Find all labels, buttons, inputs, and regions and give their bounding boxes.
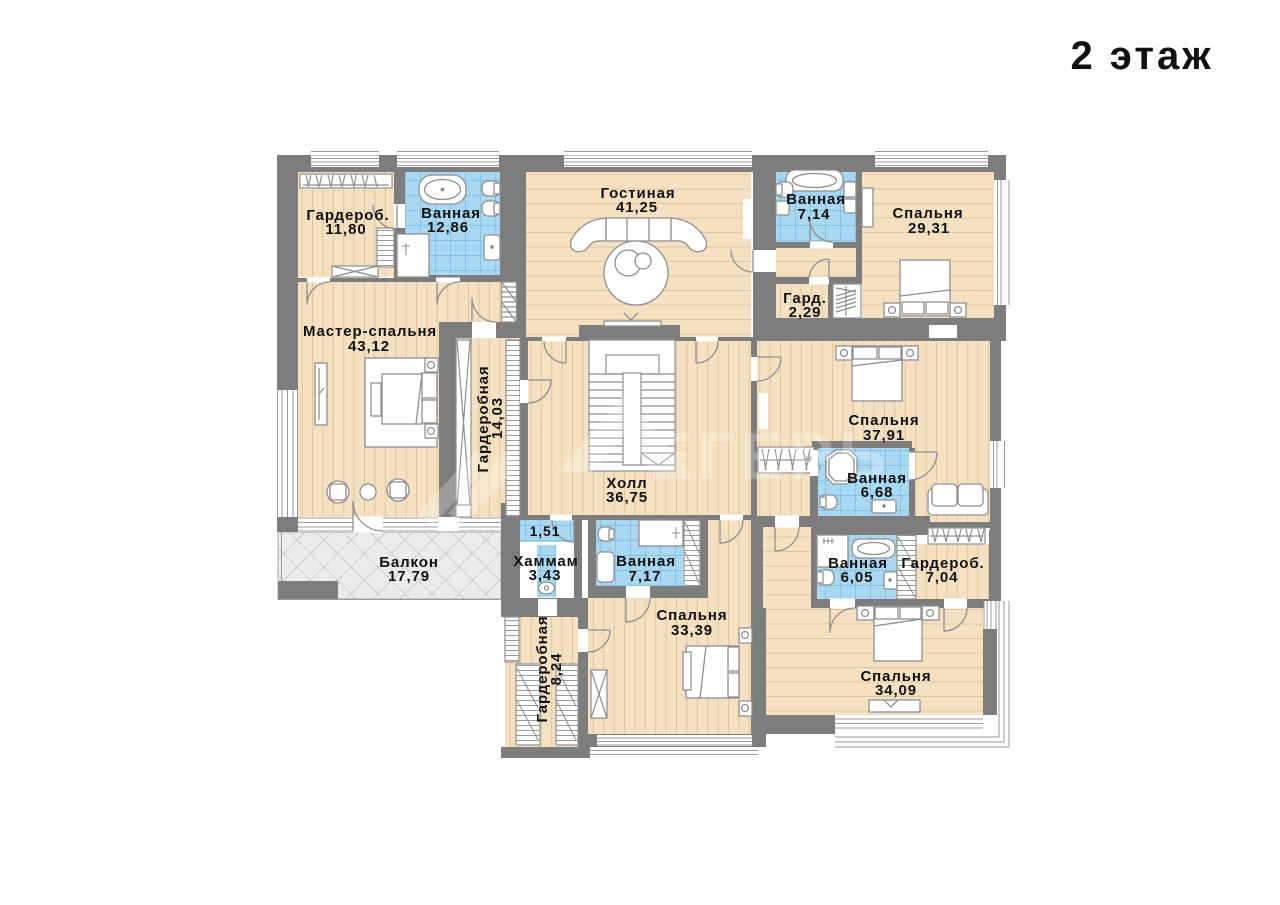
svg-text:17,79: 17,79 [388, 568, 430, 585]
svg-text:6,68: 6,68 [861, 484, 894, 501]
svg-text:7,17: 7,17 [629, 568, 662, 585]
svg-text:2 этаж: 2 этаж [1070, 34, 1213, 78]
svg-text:12,86: 12,86 [427, 219, 469, 236]
svg-text:41,25: 41,25 [616, 199, 658, 216]
svg-text:7,14: 7,14 [798, 206, 831, 223]
svg-text:2,29: 2,29 [789, 304, 822, 321]
svg-text:8,24: 8,24 [548, 653, 565, 686]
svg-text:34,09: 34,09 [875, 682, 917, 699]
svg-text:37,91: 37,91 [863, 427, 905, 444]
svg-text:14,03: 14,03 [489, 397, 506, 439]
svg-text:6,05: 6,05 [841, 569, 874, 586]
svg-text:29,31: 29,31 [908, 220, 950, 237]
svg-text:36,75: 36,75 [606, 489, 648, 506]
svg-text:11,80: 11,80 [325, 221, 366, 238]
svg-text:33,39: 33,39 [671, 622, 713, 639]
svg-text:3,43: 3,43 [529, 567, 562, 584]
svg-text:7,04: 7,04 [926, 569, 959, 586]
svg-text:43,12: 43,12 [348, 338, 390, 355]
svg-text:1,51: 1,51 [530, 523, 561, 539]
